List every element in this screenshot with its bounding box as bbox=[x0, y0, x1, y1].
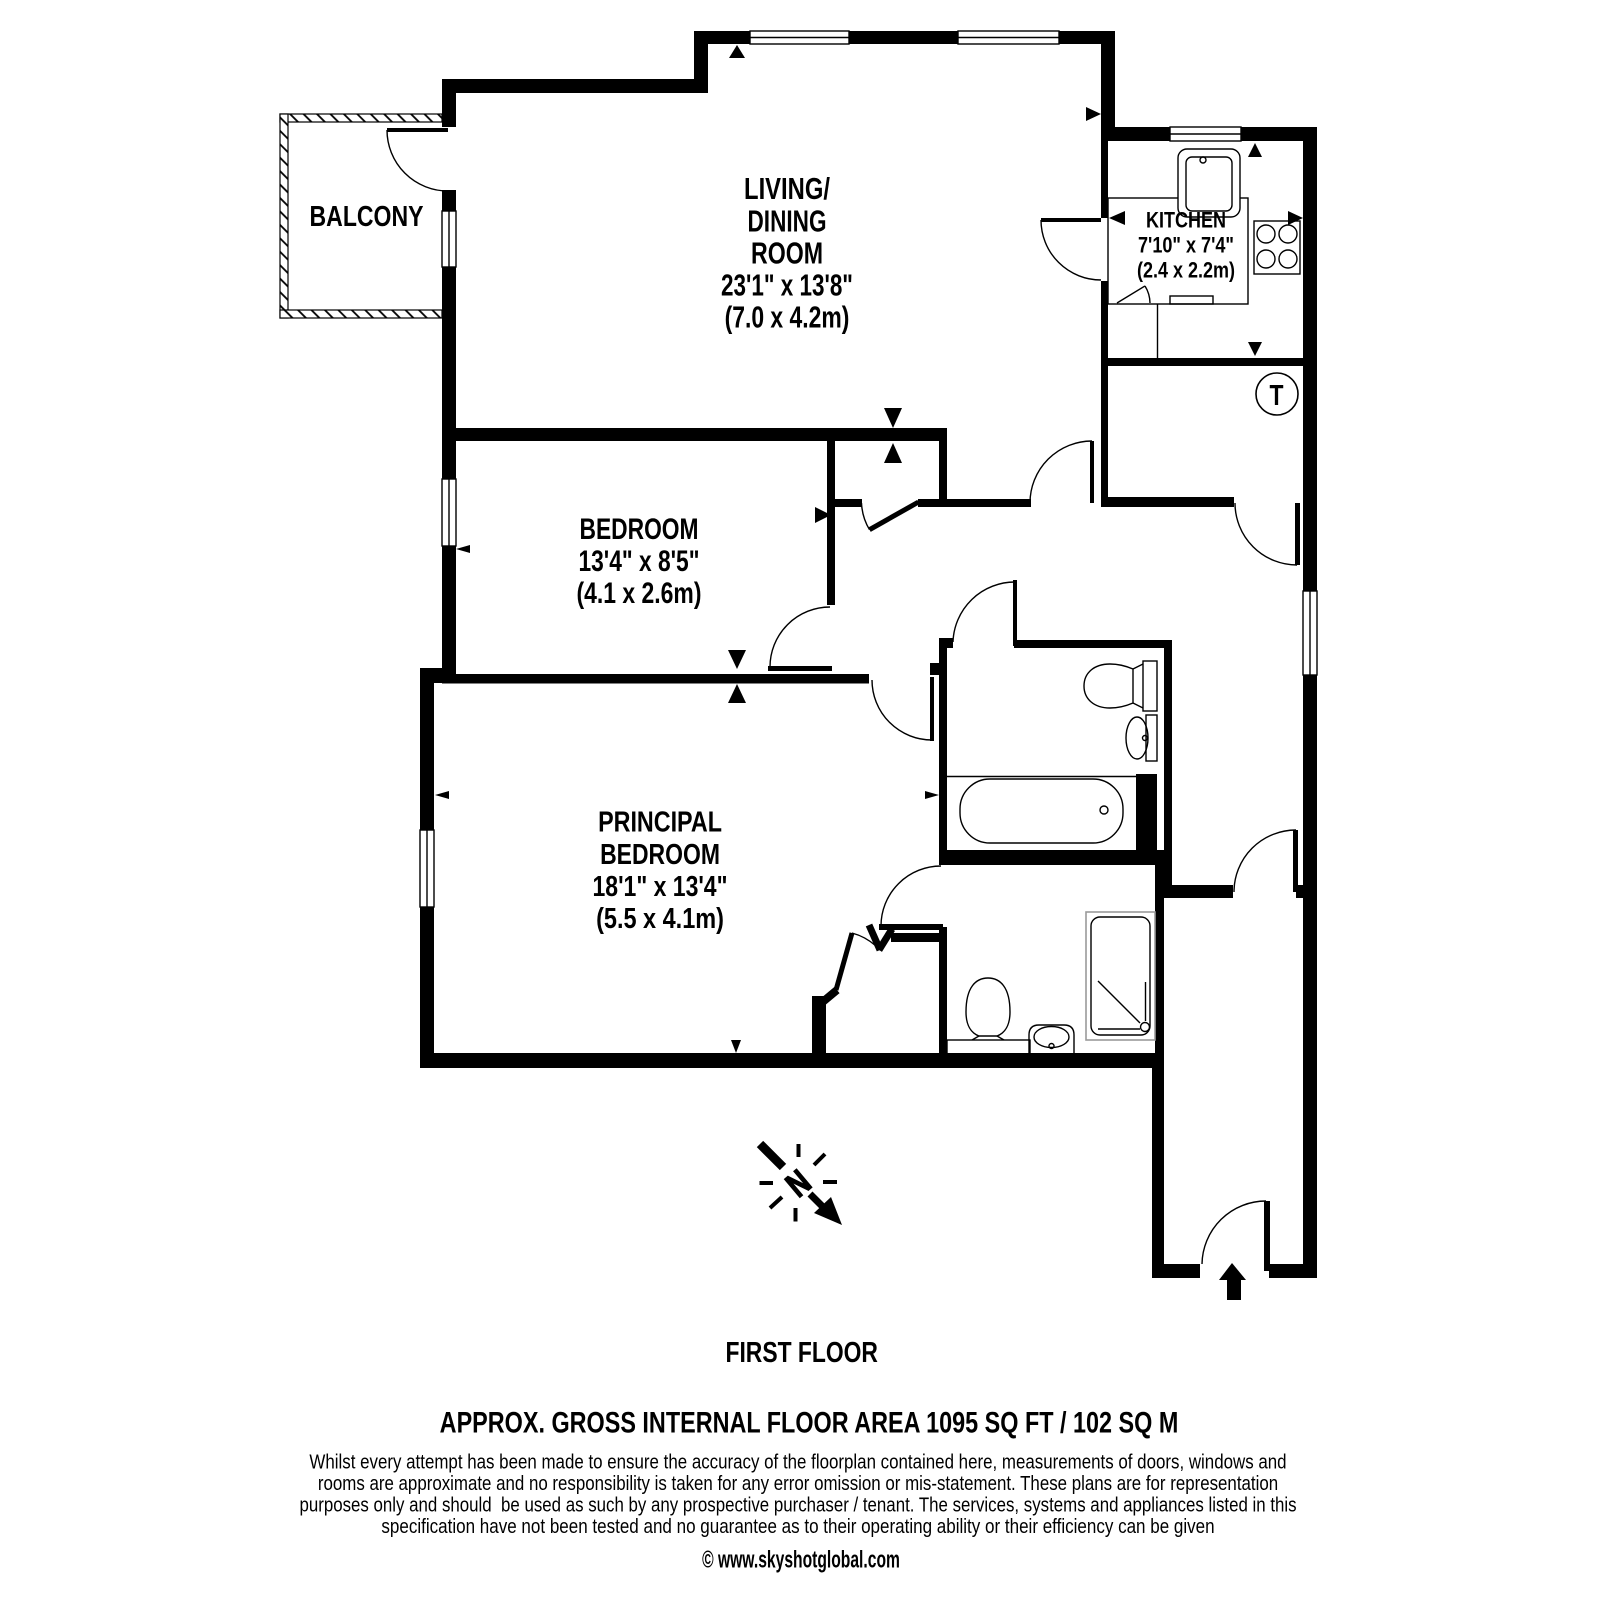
svg-text:BALCONY: BALCONY bbox=[310, 199, 424, 232]
svg-text:(5.5 x 4.1m): (5.5 x 4.1m) bbox=[596, 902, 724, 935]
svg-text:BEDROOM: BEDROOM bbox=[600, 837, 720, 870]
svg-text:© www.skyshotglobal.com: © www.skyshotglobal.com bbox=[702, 1547, 900, 1573]
svg-text:LIVING/: LIVING/ bbox=[744, 171, 830, 206]
svg-text:7'10" x 7'4": 7'10" x 7'4" bbox=[1138, 234, 1234, 258]
svg-text:T: T bbox=[1270, 378, 1284, 411]
svg-text:(2.4 x 2.2m): (2.4 x 2.2m) bbox=[1137, 259, 1235, 283]
svg-text:23'1" x 13'8": 23'1" x 13'8" bbox=[721, 267, 853, 302]
svg-text:KITCHEN: KITCHEN bbox=[1146, 209, 1226, 233]
svg-text:purposes only and should be u: purposes only and should be used as such… bbox=[299, 1493, 1296, 1516]
svg-text:Whilst every attempt has been: Whilst every attempt has been made to en… bbox=[309, 1450, 1286, 1473]
svg-text:APPROX. GROSS INTERNAL FLOOR A: APPROX. GROSS INTERNAL FLOOR AREA 1095 S… bbox=[440, 1406, 1179, 1439]
svg-text:13'4" x 8'5": 13'4" x 8'5" bbox=[578, 544, 699, 578]
svg-text:ROOM: ROOM bbox=[751, 235, 823, 270]
svg-text:rooms are approximate and no r: rooms are approximate and no responsibil… bbox=[318, 1471, 1278, 1494]
svg-text:18'1" x 13'4": 18'1" x 13'4" bbox=[593, 869, 728, 902]
svg-text:FIRST FLOOR: FIRST FLOOR bbox=[725, 1335, 878, 1368]
svg-text:(4.1 x 2.6m): (4.1 x 2.6m) bbox=[577, 576, 702, 610]
svg-text:specification have not been te: specification have not been tested and n… bbox=[381, 1515, 1214, 1538]
svg-text:BEDROOM: BEDROOM bbox=[580, 512, 699, 546]
svg-text:DINING: DINING bbox=[748, 203, 827, 238]
svg-text:(7.0 x 4.2m): (7.0 x 4.2m) bbox=[725, 299, 850, 334]
svg-text:PRINCIPAL: PRINCIPAL bbox=[598, 805, 722, 838]
